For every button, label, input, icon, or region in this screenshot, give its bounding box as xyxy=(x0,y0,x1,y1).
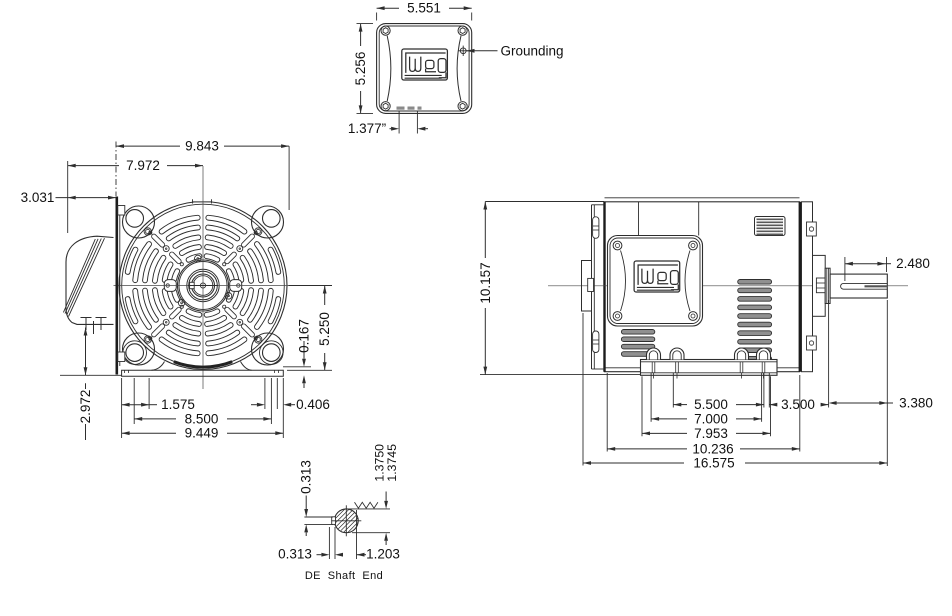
svg-text:5.500: 5.500 xyxy=(694,397,728,412)
svg-text:9.843: 9.843 xyxy=(185,139,219,154)
svg-text:0.313: 0.313 xyxy=(278,547,312,562)
svg-text:5.551: 5.551 xyxy=(407,1,441,16)
svg-text:10.157: 10.157 xyxy=(478,262,493,303)
svg-text:0.313: 0.313 xyxy=(299,460,314,494)
svg-text:5.250: 5.250 xyxy=(317,312,332,346)
svg-text:1.3745: 1.3745 xyxy=(385,444,399,482)
svg-text:10.236: 10.236 xyxy=(692,441,733,456)
svg-text:Grounding: Grounding xyxy=(501,43,564,58)
svg-text:7.953: 7.953 xyxy=(694,426,728,441)
svg-text:2.972: 2.972 xyxy=(78,390,93,424)
svg-text:8.500: 8.500 xyxy=(185,411,219,426)
svg-text:1.377”: 1.377” xyxy=(348,121,386,136)
svg-text:0.406: 0.406 xyxy=(296,397,330,412)
svg-text:1.575: 1.575 xyxy=(161,397,195,412)
svg-text:2.480: 2.480 xyxy=(896,256,930,271)
svg-text:3.380: 3.380 xyxy=(899,396,933,411)
svg-text:9.449: 9.449 xyxy=(185,426,219,441)
svg-text:0.167: 0.167 xyxy=(297,319,312,353)
svg-text:3.031: 3.031 xyxy=(21,190,55,205)
svg-text:1.203: 1.203 xyxy=(366,547,400,562)
svg-text:16.575: 16.575 xyxy=(693,456,734,471)
svg-text:5.256: 5.256 xyxy=(353,52,368,86)
svg-text:DE Shaft End: DE Shaft End xyxy=(305,570,383,582)
svg-text:3.500: 3.500 xyxy=(781,397,815,412)
svg-text:7.000: 7.000 xyxy=(694,411,728,426)
svg-text:7.972: 7.972 xyxy=(126,158,160,173)
